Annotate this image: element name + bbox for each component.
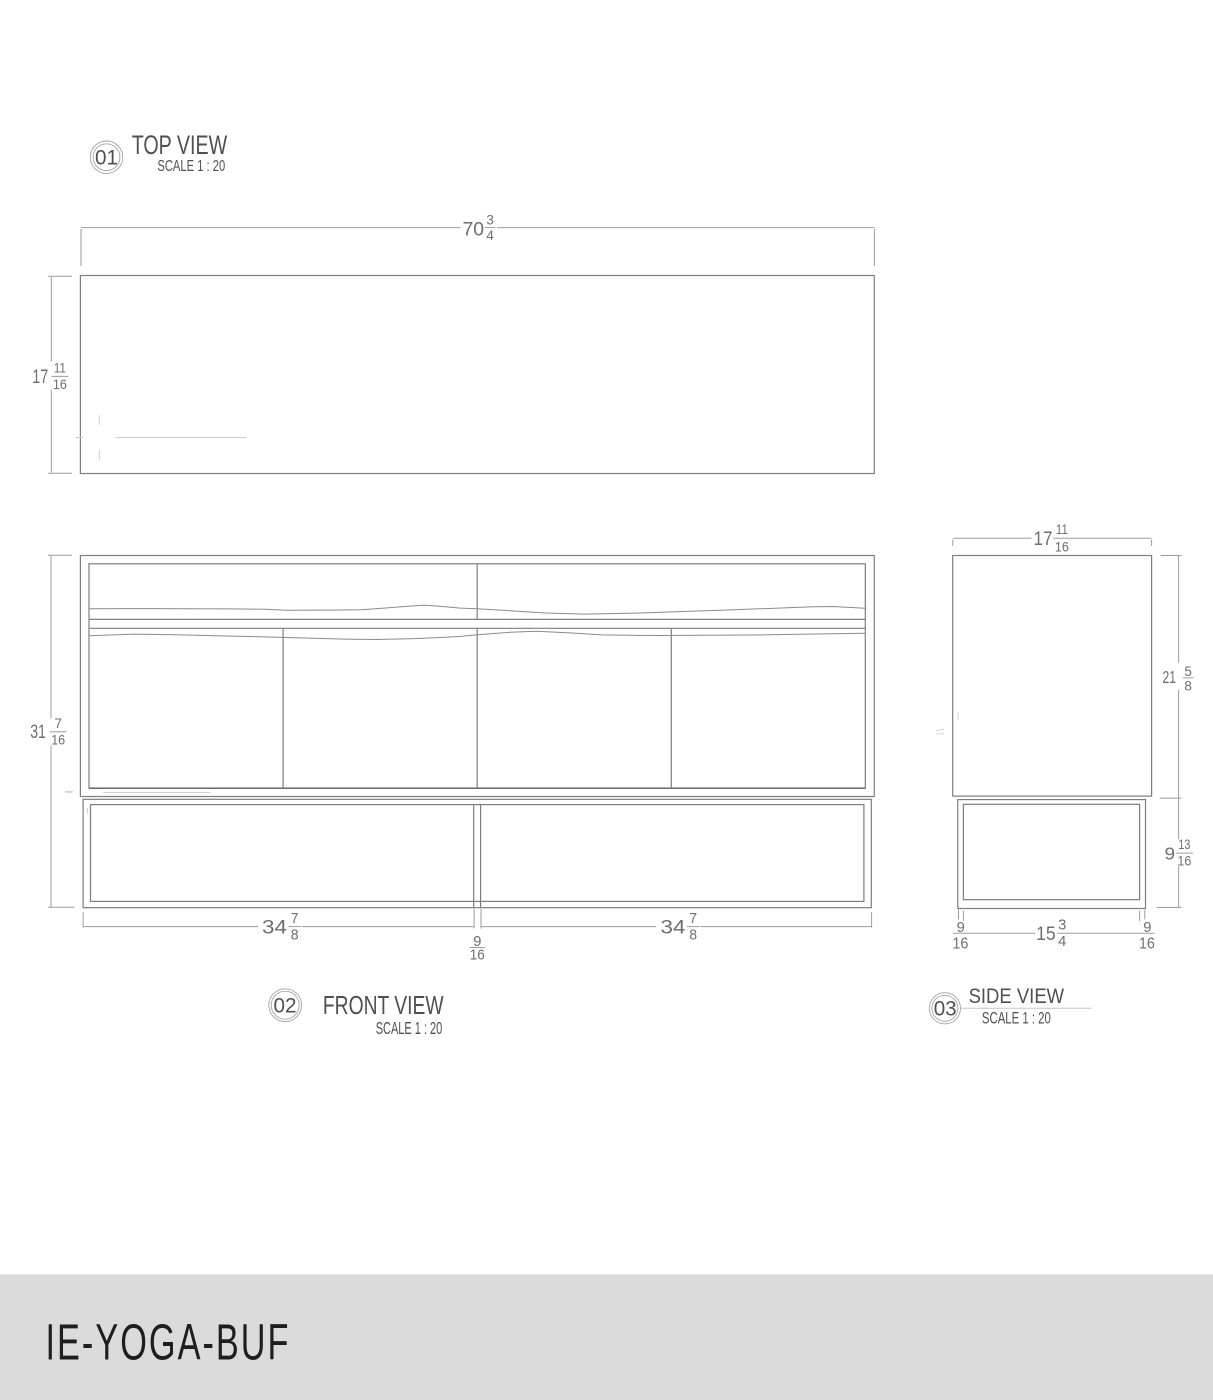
svg-text:34: 34 [661, 918, 687, 939]
svg-text:IE-YOGA-BUF: IE-YOGA-BUF [46, 1314, 291, 1371]
svg-text:8: 8 [291, 928, 299, 944]
svg-text:34: 34 [262, 918, 288, 939]
svg-text:13: 13 [1178, 836, 1190, 852]
svg-text:31: 31 [30, 722, 46, 743]
svg-text:TOP VIEW: TOP VIEW [132, 130, 228, 160]
svg-text:16: 16 [1139, 935, 1155, 952]
svg-text:9: 9 [1143, 919, 1151, 936]
svg-text:SCALE 1 : 20: SCALE 1 : 20 [376, 1018, 443, 1038]
svg-text:8: 8 [1184, 677, 1192, 693]
svg-text:16: 16 [1177, 853, 1191, 869]
svg-text:21: 21 [1163, 667, 1177, 687]
svg-text:16: 16 [51, 731, 65, 747]
svg-text:7: 7 [689, 911, 697, 927]
svg-text:16: 16 [53, 376, 67, 392]
svg-text:SCALE 1 : 20: SCALE 1 : 20 [982, 1009, 1051, 1027]
svg-text:11: 11 [1056, 521, 1068, 537]
svg-text:4: 4 [1058, 933, 1066, 950]
svg-text:15: 15 [1036, 924, 1056, 945]
svg-text:17: 17 [1034, 529, 1053, 550]
svg-text:16: 16 [1055, 538, 1069, 554]
svg-text:FRONT VIEW: FRONT VIEW [323, 990, 444, 1020]
svg-text:SIDE VIEW: SIDE VIEW [969, 984, 1065, 1008]
svg-text:03: 03 [934, 998, 957, 1021]
svg-text:SCALE 1 : 20: SCALE 1 : 20 [157, 158, 225, 175]
svg-text:01: 01 [95, 147, 118, 170]
svg-text:9: 9 [957, 919, 965, 936]
svg-text:9: 9 [1165, 844, 1176, 864]
svg-text:3: 3 [486, 212, 494, 228]
svg-text:4: 4 [486, 227, 494, 243]
svg-text:02: 02 [274, 995, 297, 1018]
svg-text:17: 17 [32, 367, 48, 388]
svg-text:16: 16 [470, 946, 485, 963]
svg-text:3: 3 [1058, 916, 1066, 933]
svg-text:7: 7 [291, 911, 299, 927]
svg-text:16: 16 [952, 935, 968, 952]
svg-text:8: 8 [689, 928, 697, 944]
svg-text:70: 70 [463, 219, 485, 240]
svg-text:7: 7 [55, 715, 63, 731]
svg-text:11: 11 [54, 359, 66, 375]
